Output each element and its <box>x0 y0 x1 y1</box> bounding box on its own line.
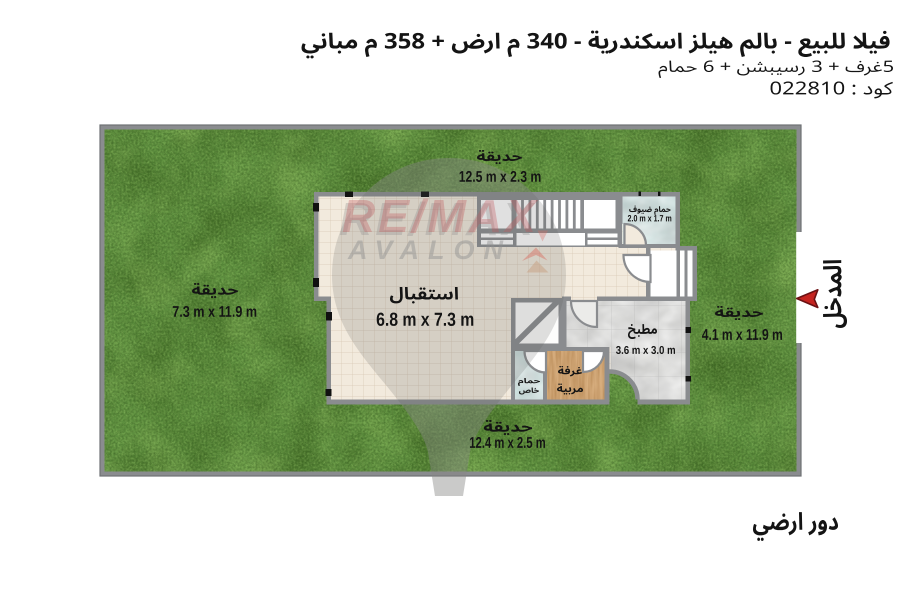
svg-text:AVALON: AVALON <box>347 235 512 265</box>
